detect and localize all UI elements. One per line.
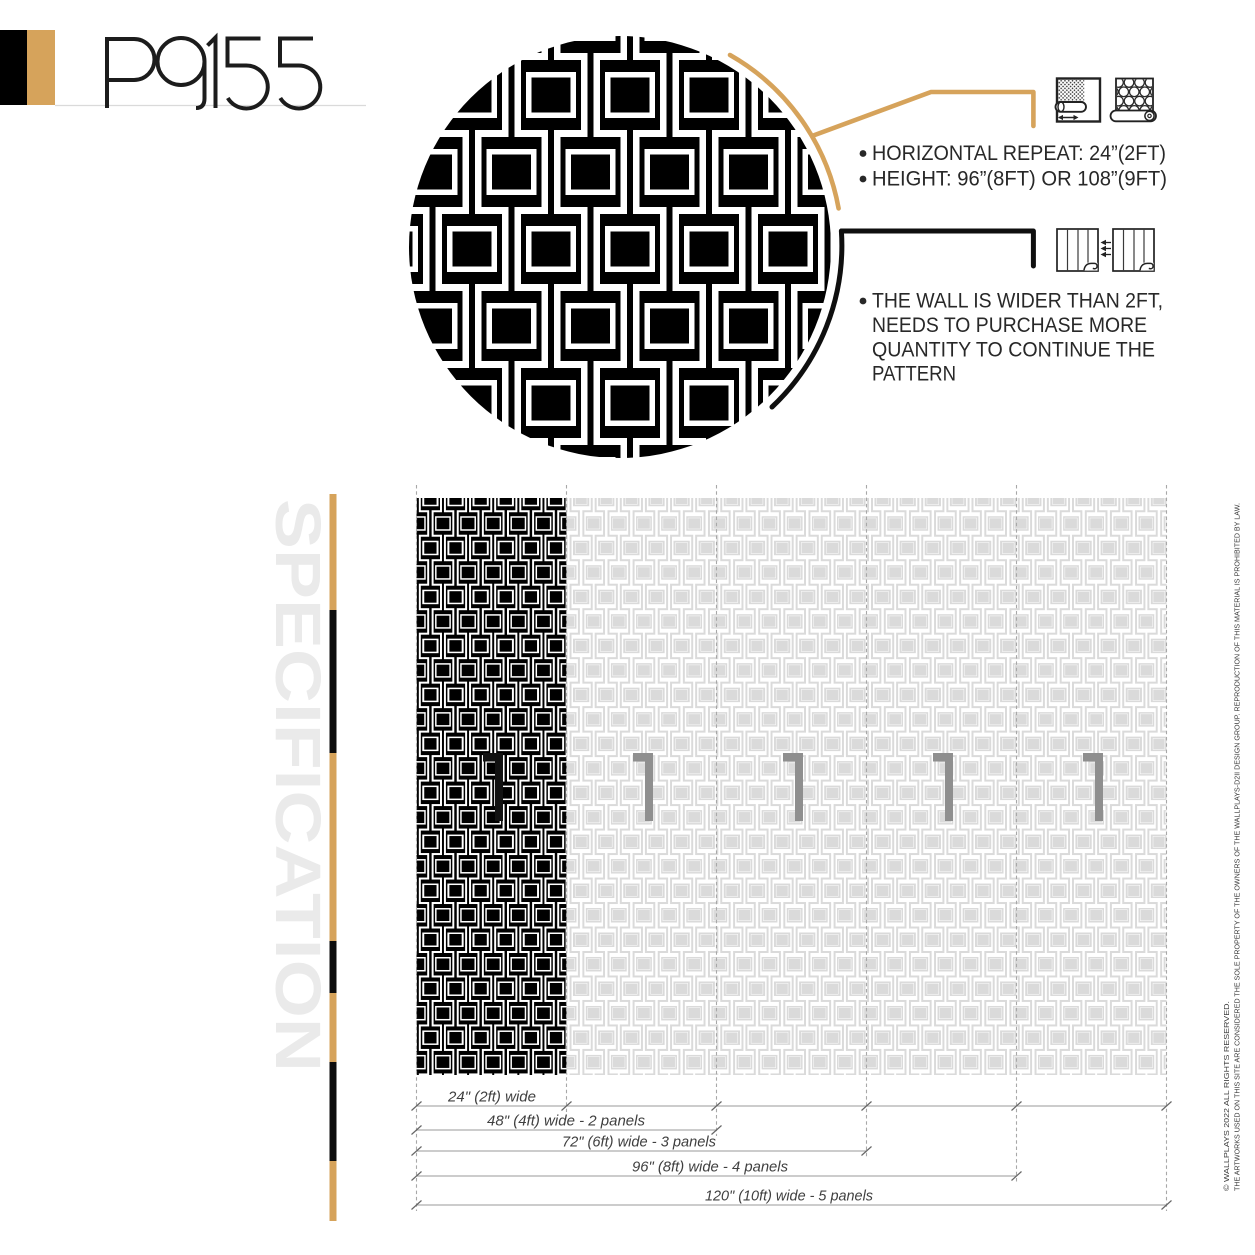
svg-text:SPECIFICATION: SPECIFICATION [262,499,334,1072]
svg-text:96" (8ft) wide - 4 panels: 96" (8ft) wide - 4 panels [632,1160,788,1176]
svg-text:QUANTITY TO CONTINUE THE: QUANTITY TO CONTINUE THE [872,338,1155,362]
svg-text:NEEDS TO PURCHASE MORE: NEEDS TO PURCHASE MORE [872,313,1147,337]
svg-text:HORIZONTAL REPEAT: 24”(2FT): HORIZONTAL REPEAT: 24”(2FT) [872,141,1166,165]
svg-text:48" (4ft) wide - 2 panels: 48" (4ft) wide - 2 panels [487,1114,645,1130]
svg-text:© WALLPLAYS 2022 ALL RIGHTS RE: © WALLPLAYS 2022 ALL RIGHTS RESERVED. TH… [1222,503,1242,1191]
svg-text:120" (10ft) wide - 5 panels: 120" (10ft) wide - 5 panels [705,1189,873,1205]
svg-text:24" (2ft) wide: 24" (2ft) wide [447,1090,536,1106]
svg-text:72" (6ft) wide - 3 panels: 72" (6ft) wide - 3 panels [562,1135,716,1151]
svg-text:PATTERN: PATTERN [872,362,956,386]
svg-text:HEIGHT: 96”(8FT) OR 108”(9FT): HEIGHT: 96”(8FT) OR 108”(9FT) [872,167,1167,191]
svg-text:THE WALL IS WIDER THAN 2FT,: THE WALL IS WIDER THAN 2FT, [872,289,1163,313]
